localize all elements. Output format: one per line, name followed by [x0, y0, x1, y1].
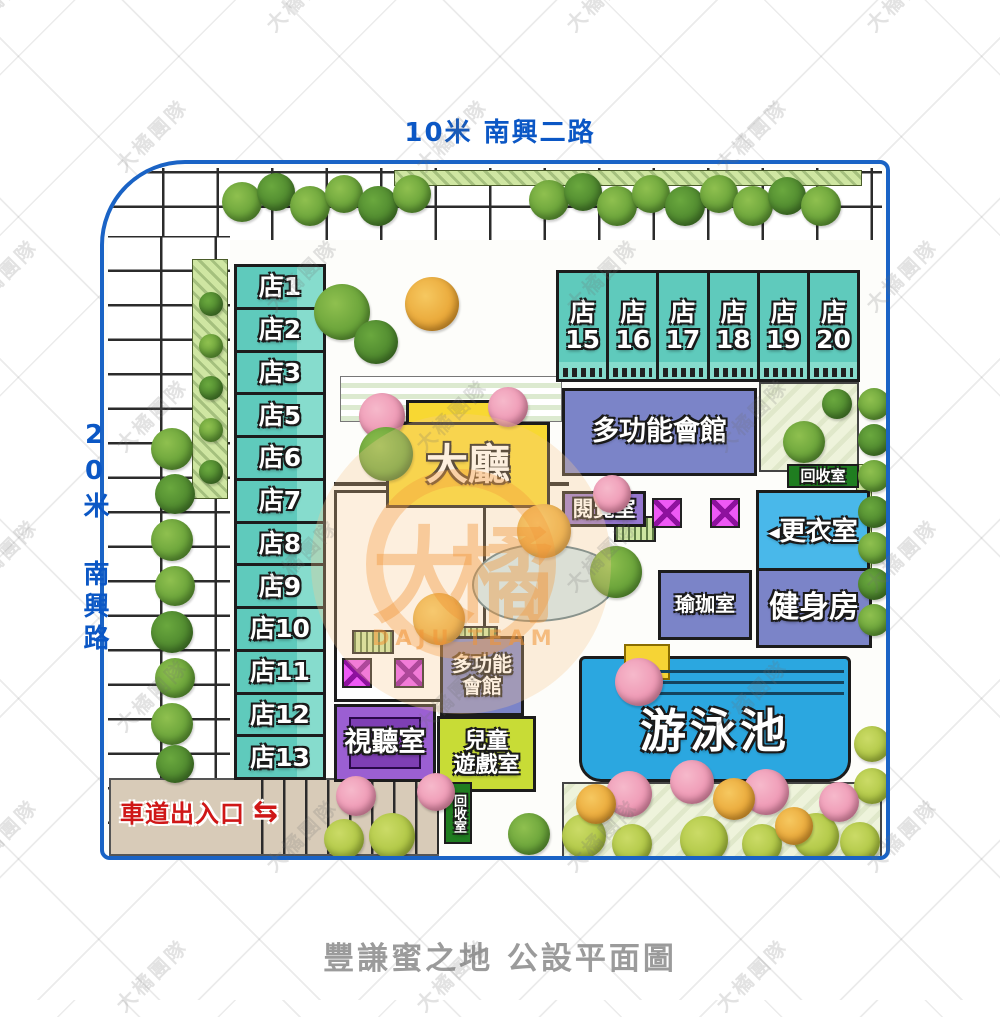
shop-unit: 店12 [237, 695, 323, 738]
tree-icon [670, 760, 714, 804]
tree-icon [801, 186, 841, 226]
tree-icon [336, 776, 376, 816]
multi-hall-top-label: 多功能會館 [592, 417, 727, 446]
tree-icon [858, 460, 890, 492]
watermark-text: 大橘團隊 [0, 232, 44, 318]
shop-unit-prefix: 店 [771, 299, 796, 326]
tree-icon [819, 782, 859, 822]
tree-icon [199, 292, 223, 316]
tree-icon [199, 376, 223, 400]
tree-icon [151, 703, 193, 745]
tree-icon [155, 658, 195, 698]
tree-icon [597, 186, 637, 226]
tree-icon [358, 186, 398, 226]
tree-icon [612, 824, 652, 860]
gym-label: 健身房 [769, 592, 859, 624]
shop-unit-label: 店8 [259, 530, 301, 557]
pool-lane-line [644, 670, 844, 673]
recycle-room-right: 回收室 [787, 464, 859, 488]
shop-unit-prefix: 店 [620, 299, 645, 326]
tree-icon [822, 389, 852, 419]
multi-hall-top: 多功能會館 [562, 388, 757, 476]
shop-unit-label: 店9 [259, 573, 301, 600]
av-room-label: 視聽室 [345, 728, 426, 757]
road-label-left: 20米 南興路 [76, 420, 113, 656]
tree-icon [858, 604, 890, 636]
site-plan: 店1店2店3店5店6店7店8店9店10店11店12店13 店15店16店17店1… [100, 160, 890, 860]
multi-hall-center-line2: 會館 [462, 676, 502, 698]
tree-icon [665, 186, 705, 226]
tree-icon [858, 496, 890, 528]
tree-icon [508, 813, 550, 855]
changing-room-text: 更衣室 [780, 517, 858, 547]
direction-arrows-icon: ⇆ [253, 794, 278, 829]
lobby-label: 大廳 [426, 442, 510, 487]
shop-unit: 店13 [237, 737, 323, 777]
tree-icon [324, 819, 364, 859]
shop-unit: 店8 [237, 524, 323, 567]
shop-unit: 店3 [237, 353, 323, 396]
shop-unit-label: 店13 [250, 744, 310, 771]
tree-icon [858, 424, 890, 456]
tree-icon [783, 421, 825, 463]
pool-lane-line [644, 681, 844, 684]
tree-icon [854, 768, 890, 804]
tree-icon [576, 784, 616, 824]
shop-unit-label: 店2 [259, 316, 301, 343]
watermark-text: 大橘團隊 [0, 512, 44, 598]
shop-unit-label: 店10 [250, 615, 310, 642]
elevator-icon [652, 498, 682, 528]
tree-icon [393, 175, 431, 213]
tree-icon [713, 778, 755, 820]
tree-icon [775, 807, 813, 845]
changing-room: ◀更衣室 [756, 490, 870, 574]
watermark-text: 大橘團隊 [258, 0, 344, 37]
tree-icon [858, 568, 890, 600]
page-root: { "page": { "title_bottom": "豐謙蜜之地 公設平面圖… [0, 0, 1000, 1000]
road-label-top: 10米 南興二路 [0, 112, 1000, 149]
gym: 健身房 [756, 568, 872, 648]
tree-icon [417, 773, 455, 811]
tree-icon [151, 611, 193, 653]
tree-icon [405, 277, 459, 331]
shop-unit-label: 店12 [250, 701, 310, 728]
tree-icon [840, 822, 880, 860]
yoga-room: 瑜珈室 [658, 570, 752, 640]
driveway-entrance: 車道出入口 ⇆ [120, 794, 278, 829]
tree-icon [199, 418, 223, 442]
elevator-icon [394, 658, 424, 688]
shop-unit-number: 17 [666, 326, 701, 353]
shop-unit: 店2 [237, 310, 323, 353]
shop-unit-label: 店3 [259, 359, 301, 386]
elevator-icon [342, 658, 372, 688]
recycle-room-right-label: 回收室 [800, 468, 845, 484]
driveway-label: 車道出入口 [120, 794, 245, 829]
kids-playroom-line1: 兒童 [464, 730, 508, 754]
shop-unit-number: 20 [816, 326, 851, 353]
shop-unit: 店5 [237, 395, 323, 438]
tree-icon [151, 519, 193, 561]
tree-icon [529, 180, 569, 220]
shop-unit: 店11 [237, 652, 323, 695]
tree-icon [199, 334, 223, 358]
tree-icon [615, 658, 663, 706]
pool-label: 游泳池 [640, 707, 790, 757]
shop-unit-prefix: 店 [570, 299, 595, 326]
shop-unit: 店1 [237, 267, 323, 310]
av-room: 視聽室 [334, 704, 436, 782]
shop-unit-label: 店11 [250, 658, 310, 685]
shop-unit: 店10 [237, 609, 323, 652]
shop-unit: 店7 [237, 481, 323, 524]
tree-icon [733, 186, 773, 226]
shop-unit: 店15 [559, 273, 609, 379]
multi-hall-center-line1: 多功能 [452, 654, 512, 676]
left-shops-column: 店1店2店3店5店6店7店8店9店10店11店12店13 [234, 264, 326, 780]
shop-unit-prefix: 店 [721, 299, 746, 326]
shop-unit-label: 店5 [259, 402, 301, 429]
tree-icon [680, 816, 728, 860]
tree-icon [359, 427, 413, 481]
watermark-text: 大橘團隊 [0, 0, 44, 37]
shop-unit-label: 店7 [259, 487, 301, 514]
elevator-icon [710, 498, 740, 528]
tree-icon [199, 460, 223, 484]
multi-hall-center: 多功能 會館 [440, 636, 524, 716]
top-shops-row: 店15店16店17店18店19店20 [556, 270, 860, 382]
tree-icon [156, 745, 194, 783]
arrow-left-icon: ◀ [768, 523, 780, 541]
pool-lane-line [644, 692, 844, 695]
shop-unit-number: 18 [716, 326, 751, 353]
shop-unit: 店17 [659, 273, 709, 379]
watermark-text: 大橘團隊 [558, 0, 644, 37]
watermark-text: 大橘團隊 [0, 792, 44, 878]
tree-icon [155, 474, 195, 514]
changing-room-label: ◀更衣室 [768, 518, 858, 546]
yoga-room-label: 瑜珈室 [675, 594, 735, 616]
shop-unit-number: 15 [565, 326, 600, 353]
tree-icon [854, 726, 890, 762]
shop-unit: 店6 [237, 438, 323, 481]
shop-unit: 店18 [710, 273, 760, 379]
shop-unit: 店20 [810, 273, 857, 379]
plan-title: 豐謙蜜之地 公設平面圖 [0, 933, 1000, 978]
shop-unit-number: 19 [766, 326, 801, 353]
stairs-icon [352, 630, 394, 654]
tree-icon [413, 593, 465, 645]
tree-icon [151, 428, 193, 470]
tree-icon [593, 475, 631, 513]
shop-unit: 店16 [609, 273, 659, 379]
shop-unit-prefix: 店 [821, 299, 846, 326]
shop-unit: 店19 [760, 273, 810, 379]
tree-icon [222, 182, 262, 222]
tree-icon [155, 566, 195, 606]
tree-icon [590, 546, 642, 598]
shop-unit-number: 16 [615, 326, 650, 353]
shop-unit-prefix: 店 [670, 299, 695, 326]
tree-icon [858, 388, 890, 420]
shop-unit: 店9 [237, 566, 323, 609]
tree-icon [517, 504, 571, 558]
watermark-text: 大橘團隊 [858, 0, 944, 37]
tree-icon [488, 387, 528, 427]
kids-playroom-line2: 遊戲室 [453, 754, 519, 778]
shop-unit-label: 店6 [259, 444, 301, 471]
tree-icon [858, 532, 890, 564]
tree-icon [290, 186, 330, 226]
tree-icon [354, 320, 398, 364]
shop-unit-label: 店1 [259, 273, 301, 300]
tree-icon [369, 813, 415, 859]
